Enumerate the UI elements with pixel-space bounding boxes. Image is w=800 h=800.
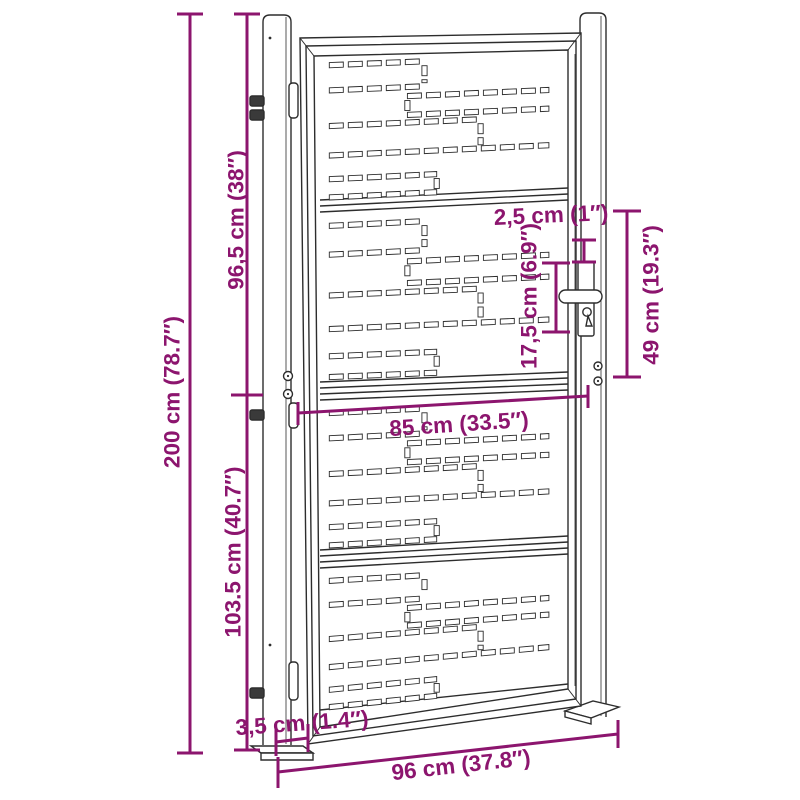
dim-label-profile: 2,5 cm (1″) <box>493 200 609 230</box>
hinge-bolt <box>250 96 264 106</box>
handle-lever <box>559 290 602 303</box>
dim-label-lower-height: 103.5 cm (40.7″) <box>221 467 246 638</box>
hinge-bolt <box>250 410 264 420</box>
dim-label-total-height: 200 cm (78.7″) <box>160 316 185 468</box>
gate-dimension-diagram: 200 cm (78.7″) 96,5 cm (38″) 103.5 cm (4… <box>0 0 800 800</box>
hinge-plate <box>289 662 298 700</box>
diagram-canvas: 200 cm (78.7″) 96,5 cm (38″) 103.5 cm (4… <box>0 0 800 800</box>
dim-label-handle-unit: 49 cm (19.3″) <box>639 225 664 365</box>
dim-label-handle-length: 17,5 cm (6.9″) <box>517 223 542 369</box>
gate-drawing <box>250 13 619 760</box>
dim-handle-unit-line <box>613 211 641 377</box>
dim-sections-line <box>231 14 263 750</box>
keyhole-icon <box>583 308 591 316</box>
hinge-bolt <box>250 110 264 120</box>
hinge-bolt <box>250 688 264 698</box>
hinge-plate <box>289 83 298 118</box>
dim-label-upper-height: 96,5 cm (38″) <box>224 150 249 290</box>
